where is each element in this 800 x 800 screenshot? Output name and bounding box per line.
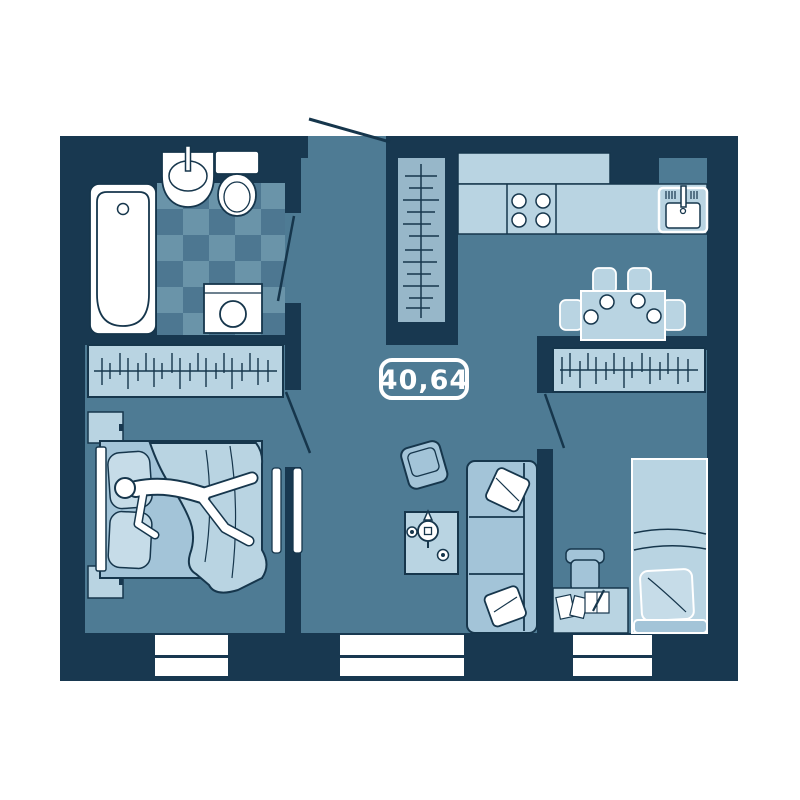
bathroom: [85, 146, 285, 335]
hall-wardrobe-shadow-bottom: [398, 322, 458, 345]
person-head: [115, 478, 135, 498]
plate-icon: [647, 309, 661, 323]
bathroom-sink-icon: [162, 146, 214, 207]
desk-icon: [553, 588, 628, 633]
hall-wardrobe-shadow-right: [445, 158, 458, 345]
area-label-text: 40,64: [379, 365, 469, 396]
plate-icon: [631, 294, 645, 308]
toilet-icon: [215, 151, 259, 216]
bedroom-left-wardrobe-icon: [88, 345, 283, 397]
washing-machine-icon: [204, 284, 262, 333]
burner-icon: [512, 213, 526, 227]
plate-icon: [600, 295, 614, 309]
plate-icon: [584, 310, 598, 324]
burner-icon: [536, 194, 550, 208]
kitchen-sink-icon: [659, 186, 707, 232]
kitchen-upper-cabinet-icon: [458, 153, 610, 184]
dining-chair-icon: [560, 300, 583, 330]
wall-bedroom-right-bottom: [537, 449, 553, 633]
bed-footboard-icon: [634, 620, 707, 633]
bedroom-right-wardrobe-icon: [553, 348, 705, 392]
entry-opening: [308, 136, 388, 160]
bed-pillow-icon: [108, 511, 153, 569]
nightstand-icon: [88, 412, 123, 443]
wall-entry-stub: [386, 136, 398, 345]
floor-plan: 40,64: [0, 0, 800, 800]
wall-bathroom-bedroom: [85, 335, 301, 345]
kitchen-faucet-icon: [681, 186, 686, 207]
area-label: 40,64: [379, 360, 469, 398]
bathtub-drain-icon: [118, 204, 129, 215]
single-bed-icon: [632, 459, 707, 633]
headboard-icon: [96, 447, 106, 571]
cup-icon: [407, 527, 417, 537]
cup-icon: [438, 550, 449, 561]
burner-icon: [512, 194, 526, 208]
sink-faucet-icon: [186, 146, 191, 171]
toilet-tank: [215, 151, 259, 174]
wall-hall-left-mid: [285, 303, 301, 390]
bathtub-icon: [90, 184, 156, 334]
coffee-table-icon: [405, 511, 458, 574]
hallway-wardrobe-icon: [398, 158, 445, 322]
double-bed-icon: [96, 441, 267, 593]
desk-chair-icon: [566, 549, 604, 591]
burner-icon: [536, 213, 550, 227]
wall-above-counter: [610, 136, 659, 184]
sofa-icon: [467, 461, 537, 633]
wall-hall-left-top: [285, 158, 301, 213]
